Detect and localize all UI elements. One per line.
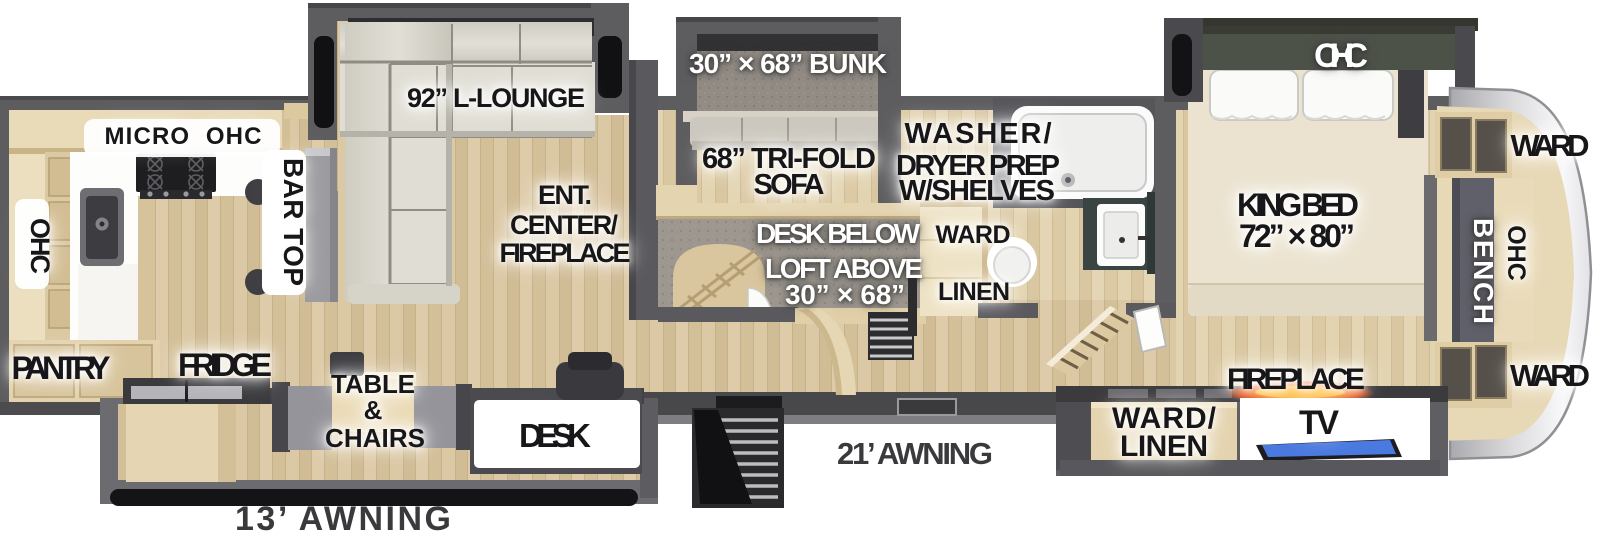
- svg-text:WARD: WARD: [936, 221, 1011, 249]
- svg-text:ENT.: ENT.: [538, 180, 592, 210]
- svg-text:DESK BELOW: DESK BELOW: [756, 218, 921, 249]
- svg-text:13’ AWNING: 13’ AWNING: [235, 500, 451, 538]
- svg-text:TV: TV: [1299, 404, 1339, 442]
- svg-text:FRIDGE: FRIDGE: [178, 347, 272, 383]
- svg-text:W/SHELVES: W/SHELVES: [899, 175, 1055, 207]
- svg-text:DESK: DESK: [519, 417, 591, 454]
- svg-text:MICRO OHC: MICRO OHC: [105, 123, 262, 150]
- svg-text:SOFA: SOFA: [754, 169, 825, 201]
- svg-text:WARD: WARD: [1510, 358, 1590, 393]
- svg-text:OHC: OHC: [1314, 37, 1368, 75]
- svg-text:30” × 68” BUNK: 30” × 68” BUNK: [689, 48, 887, 79]
- svg-text:LINEN: LINEN: [1120, 430, 1208, 463]
- svg-text:WARD: WARD: [1511, 128, 1590, 163]
- svg-text:FIREPLACE: FIREPLACE: [500, 238, 631, 268]
- svg-text:PANTRY: PANTRY: [12, 350, 111, 386]
- svg-text:30” × 68”: 30” × 68”: [785, 279, 905, 310]
- svg-text:CENTER/: CENTER/: [510, 210, 618, 240]
- svg-text:&: &: [364, 395, 383, 425]
- svg-text:WASHER/: WASHER/: [905, 118, 1052, 150]
- svg-text:BENCH: BENCH: [1468, 218, 1499, 324]
- svg-text:OHC: OHC: [1502, 225, 1530, 281]
- svg-text:72” × 80”: 72” × 80”: [1239, 218, 1355, 254]
- svg-text:CHAIRS: CHAIRS: [325, 423, 425, 453]
- svg-text:OHC: OHC: [25, 218, 55, 274]
- svg-text:FIREPLACE: FIREPLACE: [1227, 363, 1365, 396]
- svg-text:92” L-LOUNGE: 92” L-LOUNGE: [407, 83, 585, 113]
- svg-text:BAR TOP: BAR TOP: [278, 158, 309, 286]
- svg-text:LINEN: LINEN: [938, 278, 1010, 306]
- svg-text:21’ AWNING: 21’ AWNING: [837, 436, 993, 471]
